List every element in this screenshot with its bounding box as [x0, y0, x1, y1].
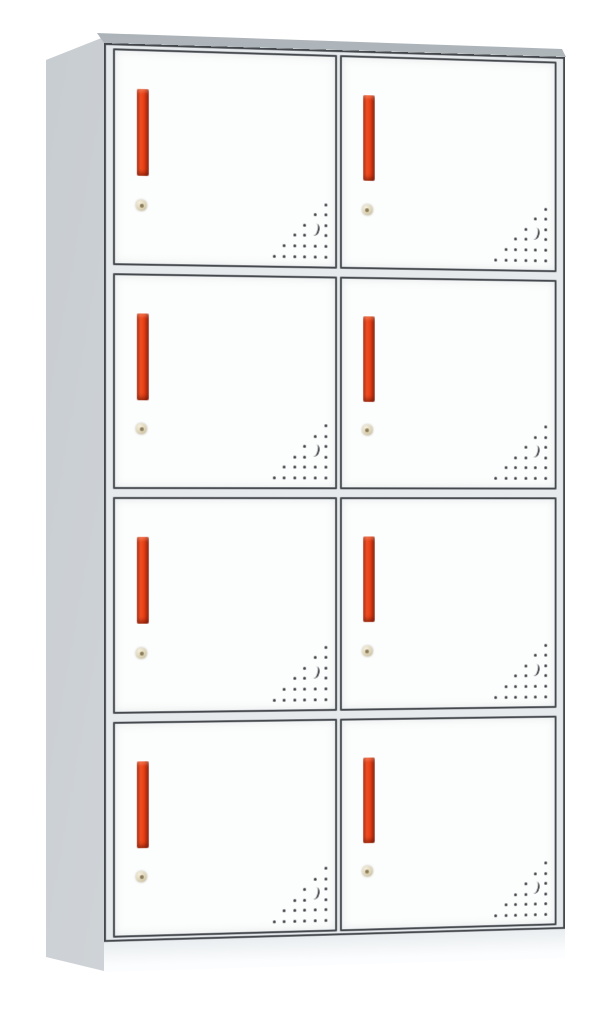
keyhole-pin	[140, 427, 144, 431]
vent-dot	[544, 685, 547, 688]
vent-dot	[324, 908, 327, 911]
vent-dot	[514, 477, 517, 480]
vent-dot	[283, 254, 286, 257]
vent-dot	[314, 698, 317, 701]
ventilation-holes	[272, 867, 326, 924]
ventilation-holes	[494, 425, 547, 480]
keyhole-lock-icon	[136, 871, 147, 882]
vent-dot	[524, 882, 527, 885]
vent-dot	[544, 695, 547, 698]
vent-dot	[293, 244, 296, 247]
vent-dot	[544, 477, 547, 480]
vent-dot	[544, 664, 547, 667]
vent-dot	[534, 218, 537, 221]
vent-dot	[524, 248, 527, 251]
vent-dot	[494, 914, 497, 917]
vent-dot	[544, 207, 547, 210]
vent-dot	[293, 909, 296, 912]
vent-dot	[524, 695, 527, 698]
vent-dot	[324, 698, 327, 701]
vent-dot	[283, 466, 286, 469]
locker-door-r1c1	[113, 48, 337, 268]
keyhole-lock-icon	[362, 645, 373, 656]
vent-dot	[272, 476, 275, 479]
vent-crescent-slot	[308, 443, 320, 458]
vent-dot	[534, 695, 537, 698]
ventilation-holes	[272, 202, 326, 258]
vent-dot	[504, 466, 507, 469]
vent-dot	[324, 203, 327, 206]
vent-dot	[534, 259, 537, 262]
door-handle	[137, 537, 149, 624]
vent-dot	[544, 674, 547, 677]
door-handle	[363, 95, 375, 181]
vent-dot	[514, 685, 517, 688]
locker-door-r2c2	[339, 276, 556, 489]
vent-dot	[544, 259, 547, 262]
keyhole-lock-icon	[136, 199, 147, 210]
keyhole-pin	[365, 208, 369, 212]
vent-dot	[534, 436, 537, 439]
vent-dot	[544, 425, 547, 428]
vent-dot	[314, 919, 317, 922]
keyhole-lock-icon	[136, 423, 147, 434]
vent-dot	[314, 877, 317, 880]
vent-dot	[524, 675, 527, 678]
vent-dot	[504, 914, 507, 917]
vent-dot	[324, 645, 327, 648]
vent-dot	[524, 477, 527, 480]
ventilation-holes	[494, 206, 547, 261]
vent-dot	[303, 476, 306, 479]
vent-crescent-slot	[529, 662, 541, 677]
vent-dot	[293, 677, 296, 680]
door-handle	[137, 313, 149, 400]
locker-door-r4c2	[339, 715, 556, 931]
locker-door-r1c2	[339, 55, 556, 272]
vent-dot	[324, 213, 327, 216]
vent-dot	[514, 675, 517, 678]
vent-dot	[314, 245, 317, 248]
vent-dot	[544, 903, 547, 906]
door-handle	[137, 89, 149, 176]
vent-dot	[314, 255, 317, 258]
vent-dot	[544, 218, 547, 221]
vent-dot	[324, 445, 327, 448]
vent-dot	[544, 892, 547, 895]
vent-dot	[303, 466, 306, 469]
vent-dot	[324, 666, 327, 669]
locker-door-r4c1	[113, 718, 337, 938]
vent-dot	[303, 255, 306, 258]
vent-dot	[544, 228, 547, 231]
keyhole-pin	[365, 870, 369, 874]
keyhole-pin	[365, 429, 369, 433]
vent-dot	[534, 685, 537, 688]
locker-door-r2c1	[113, 273, 337, 490]
door-handle	[363, 757, 375, 843]
vent-dot	[524, 903, 527, 906]
vent-dot	[283, 244, 286, 247]
door-handle	[363, 537, 375, 623]
locker-door-r3c2	[339, 497, 556, 710]
locker-door-r3c1	[113, 497, 337, 713]
vent-dot	[324, 476, 327, 479]
vent-dot	[524, 685, 527, 688]
vent-dot	[524, 893, 527, 896]
vent-dot	[534, 248, 537, 251]
vent-dot	[544, 436, 547, 439]
vent-dot	[494, 696, 497, 699]
vent-crescent-slot	[529, 444, 541, 459]
ventilation-holes	[494, 643, 547, 698]
vent-dot	[544, 456, 547, 459]
vent-dot	[272, 920, 275, 923]
vent-dot	[303, 698, 306, 701]
keyhole-lock-icon	[362, 425, 373, 436]
vent-dot	[514, 893, 517, 896]
vent-dot	[324, 224, 327, 227]
vent-dot	[303, 687, 306, 690]
vent-dot	[544, 872, 547, 875]
ventilation-holes	[272, 424, 326, 479]
vent-dot	[534, 913, 537, 916]
cabinet-front	[104, 43, 565, 972]
vent-dot	[314, 435, 317, 438]
vent-dot	[514, 456, 517, 459]
vent-dot	[272, 698, 275, 701]
vent-crescent-slot	[308, 886, 320, 901]
vent-dot	[303, 223, 306, 226]
vent-dot	[514, 238, 517, 241]
vent-dot	[324, 424, 327, 427]
vent-dot	[324, 677, 327, 680]
vent-dot	[324, 888, 327, 891]
vent-dot	[324, 435, 327, 438]
vent-dot	[324, 466, 327, 469]
door-grid	[104, 43, 565, 942]
vent-dot	[524, 664, 527, 667]
vent-dot	[524, 467, 527, 470]
vent-dot	[504, 248, 507, 251]
keyhole-lock-icon	[362, 204, 373, 215]
vent-dot	[324, 919, 327, 922]
vent-dot	[283, 476, 286, 479]
vent-crescent-slot	[308, 664, 320, 679]
vent-dot	[324, 255, 327, 258]
vent-dot	[303, 244, 306, 247]
locker-cabinet-photo	[0, 0, 605, 1009]
keyhole-pin	[140, 875, 144, 879]
vent-dot	[303, 888, 306, 891]
vent-dot	[303, 445, 306, 448]
vent-dot	[544, 861, 547, 864]
vent-dot	[303, 455, 306, 458]
vent-dot	[524, 456, 527, 459]
vent-dot	[293, 476, 296, 479]
vent-dot	[272, 254, 275, 257]
vent-dot	[303, 234, 306, 237]
vent-dot	[504, 258, 507, 261]
vent-dot	[514, 914, 517, 917]
vent-dot	[514, 467, 517, 470]
vent-dot	[524, 913, 527, 916]
vent-dot	[293, 234, 296, 237]
keyhole-pin	[140, 203, 144, 207]
vent-dot	[303, 899, 306, 902]
vent-dot	[544, 643, 547, 646]
vent-dot	[293, 698, 296, 701]
door-handle	[137, 761, 149, 848]
vent-dot	[524, 446, 527, 449]
vent-dot	[314, 213, 317, 216]
ventilation-holes	[494, 861, 547, 917]
vent-dot	[314, 687, 317, 690]
vent-dot	[324, 898, 327, 901]
vent-dot	[293, 899, 296, 902]
vent-dot	[514, 248, 517, 251]
vent-crescent-slot	[529, 226, 541, 241]
vent-dot	[303, 667, 306, 670]
vent-dot	[504, 477, 507, 480]
vent-dot	[324, 867, 327, 870]
vent-dot	[314, 466, 317, 469]
vent-dot	[303, 919, 306, 922]
vent-dot	[324, 234, 327, 237]
vent-crescent-slot	[529, 880, 541, 894]
vent-dot	[504, 685, 507, 688]
keyhole-pin	[140, 651, 144, 655]
vent-dot	[534, 477, 537, 480]
vent-dot	[544, 238, 547, 241]
vent-dot	[324, 877, 327, 880]
vent-dot	[534, 654, 537, 657]
vent-dot	[293, 455, 296, 458]
vent-dot	[293, 255, 296, 258]
vent-dot	[314, 476, 317, 479]
vent-dot	[494, 477, 497, 480]
vent-dot	[303, 909, 306, 912]
vent-dot	[504, 904, 507, 907]
vent-dot	[283, 920, 286, 923]
vent-dot	[324, 687, 327, 690]
keyhole-lock-icon	[362, 866, 373, 877]
door-handle	[363, 316, 375, 402]
vent-dot	[544, 467, 547, 470]
vent-dot	[494, 258, 497, 261]
ventilation-holes	[272, 645, 326, 701]
vent-dot	[534, 872, 537, 875]
vent-crescent-slot	[308, 221, 320, 236]
vent-dot	[293, 688, 296, 691]
vent-dot	[544, 913, 547, 916]
vent-dot	[524, 228, 527, 231]
vent-dot	[544, 654, 547, 657]
vent-dot	[544, 249, 547, 252]
vent-dot	[544, 882, 547, 885]
vent-dot	[314, 909, 317, 912]
vent-dot	[504, 695, 507, 698]
vent-dot	[314, 656, 317, 659]
keyhole-pin	[365, 649, 369, 653]
vent-dot	[544, 446, 547, 449]
vent-dot	[293, 466, 296, 469]
vent-dot	[524, 259, 527, 262]
vent-dot	[324, 245, 327, 248]
vent-dot	[324, 456, 327, 459]
vent-dot	[514, 258, 517, 261]
vent-dot	[303, 677, 306, 680]
vent-dot	[534, 467, 537, 470]
vent-dot	[514, 695, 517, 698]
vent-dot	[283, 688, 286, 691]
vent-dot	[524, 238, 527, 241]
vent-dot	[514, 903, 517, 906]
keyhole-lock-icon	[136, 647, 147, 658]
vent-dot	[534, 903, 537, 906]
vent-dot	[324, 656, 327, 659]
vent-dot	[293, 920, 296, 923]
vent-dot	[283, 910, 286, 913]
vent-dot	[283, 698, 286, 701]
